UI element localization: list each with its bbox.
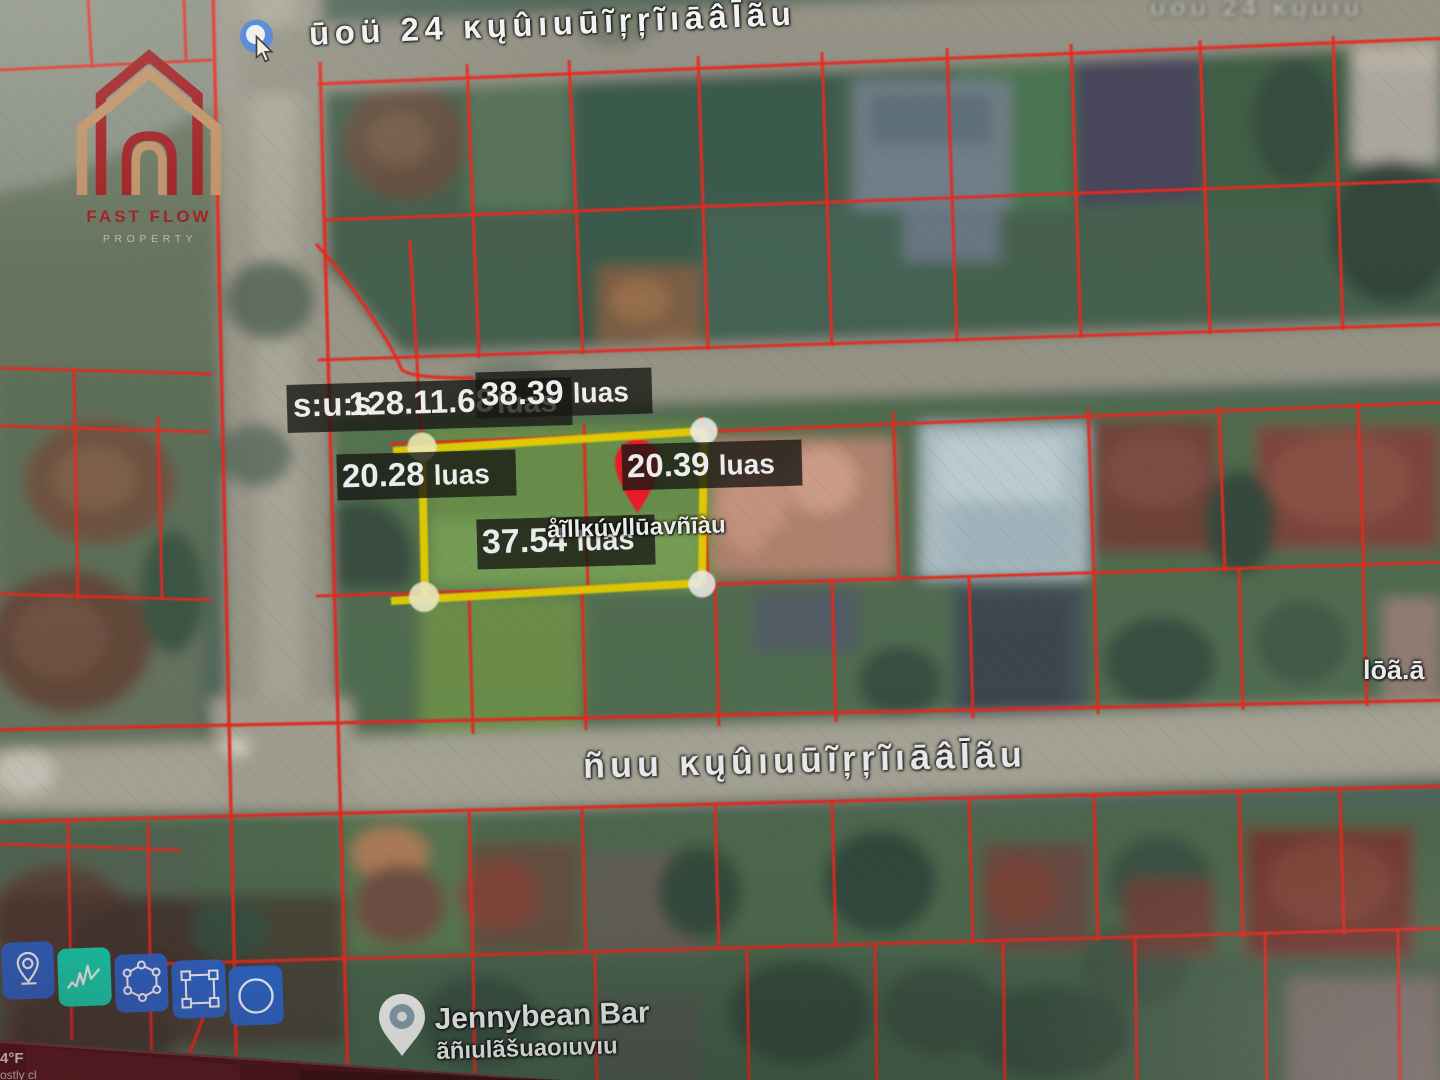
svg-text:PROPERTY: PROPERTY (103, 233, 197, 245)
svg-text:FAST FLOW: FAST FLOW (86, 207, 211, 226)
